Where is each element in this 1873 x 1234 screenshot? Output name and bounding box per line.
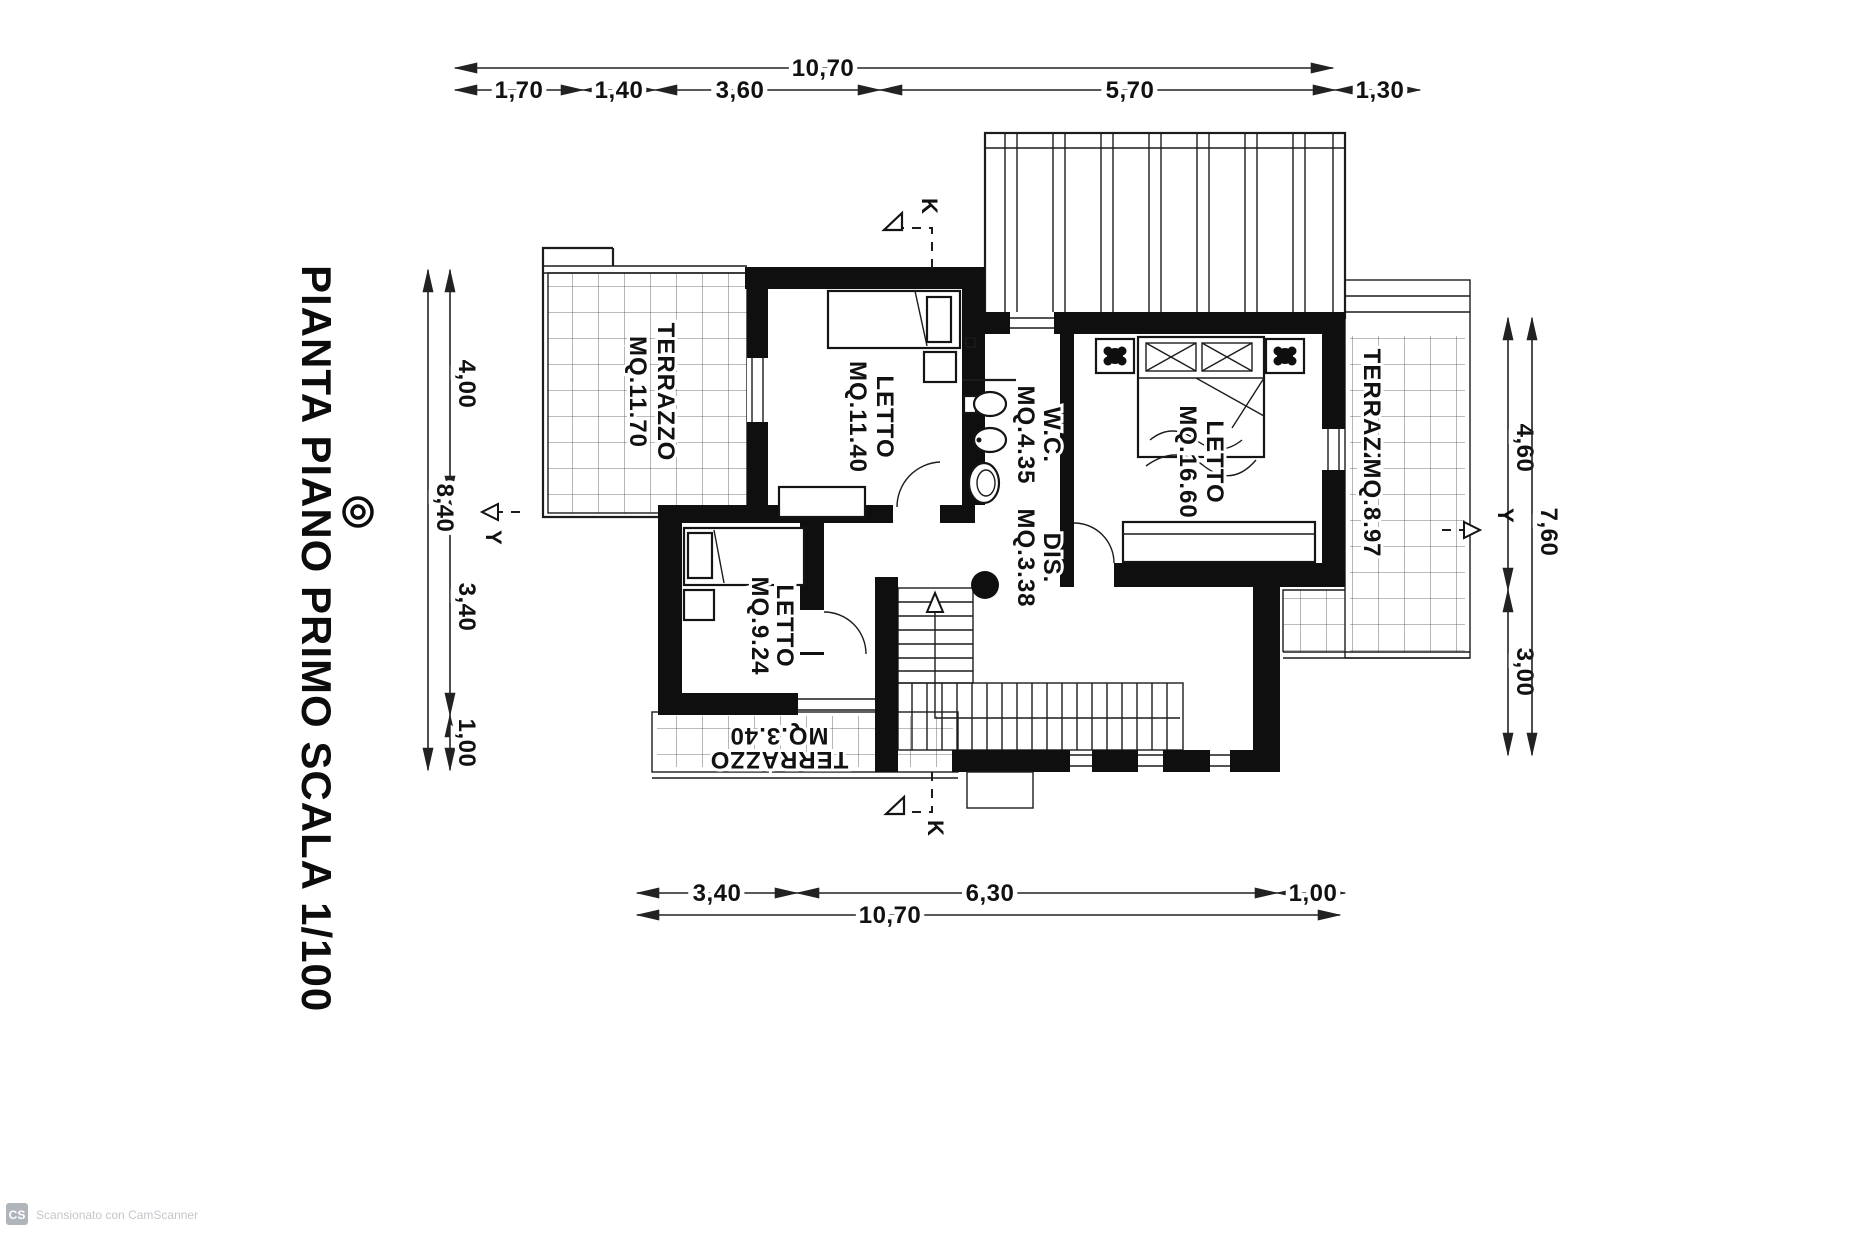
room-area-terrazzo-s: MQ.3.40 [729,722,828,749]
room-label-terrazzo-nw: TERRAZZO [652,323,679,462]
room-area-letto-e: MQ.16.60 [1174,405,1201,518]
section-letter-right: Y [1493,508,1518,523]
wardrobe [779,487,865,517]
nightstand [684,590,714,620]
camscanner-badge-text: CS [9,1208,26,1222]
dim-left-3: 1,00 [453,719,480,768]
room-area-letto-nw: MQ.11.40 [844,361,871,473]
door-arc-letto-sw [824,612,866,654]
room-label-letto-sw: LETTO [771,584,798,667]
dim-top-5: 1,30 [1356,77,1405,104]
dimensions-left: 4,00 3,40 1,00 8,40 [428,270,480,770]
dim-right-total: 7,60 [1535,508,1562,557]
dim-bottom-1: 3,40 [693,880,742,907]
section-marker-top: K [884,198,942,268]
dim-left-total: 8,40 [431,484,458,533]
section-letter-top: K [917,198,942,214]
room-area-terrazzo-e: MQ.8.97 [1358,458,1385,557]
dim-top-3: 3,60 [716,77,765,104]
dimensions-bottom: 3,40 6,30 1,00 10,70 [637,880,1345,929]
door-arc-letto-e [1074,523,1114,563]
section-triangle-top [884,213,902,230]
page-title: PIANTA PIANO PRIMO SCALA 1/100 [293,265,340,1012]
dimensions-right: 4,60 3,00 7,60 [1508,318,1562,755]
room-label-letto-nw: LETTO [871,375,898,458]
section-marker-bottom: K [886,772,948,836]
dim-top-4: 5,70 [1106,77,1155,104]
floor-plan-drawing: TERRAZZO MQ.11.70 LETTO MQ.11.40 W.C. MQ… [0,0,1873,1234]
dim-bottom-3: 1,00 [1289,880,1338,907]
section-letter-bottom: K [923,820,948,836]
room-label-terrazzo-s: TERRAZZO [710,746,849,773]
dim-top-total: 10,70 [792,55,855,82]
nightstand [924,352,956,382]
dim-right-2: 3,00 [1511,648,1538,697]
section-marker-left: Y [481,504,520,545]
room-area-letto-sw: MQ.9.24 [746,576,773,675]
pillow [927,297,951,342]
dimensions-top: 10,70 1,70 1,40 3,60 5,70 1,30 [455,55,1420,104]
dim-top-1: 1,70 [495,77,544,104]
dim-bottom-total: 10,70 [859,902,922,929]
dim-left-1: 4,00 [453,360,480,409]
room-label-dis: DIS. [1038,533,1065,584]
camscanner-text: Scansionato con CamScanner [36,1208,198,1222]
camscanner-watermark: CS Scansionato con CamScanner [6,1203,198,1225]
section-triangle-right [1464,522,1480,538]
room-label-letto-e: LETTO [1201,420,1228,503]
wardrobe [1123,522,1315,562]
column [971,571,999,599]
section-letter-left: Y [481,530,506,545]
room-area-wc: MQ.4.35 [1012,385,1039,484]
section-triangle-left [482,504,498,520]
room-area-terrazzo-nw: MQ.11.70 [624,336,651,448]
scanned-floor-plan-page: TERRAZZO MQ.11.70 LETTO MQ.11.40 W.C. MQ… [0,0,1873,1234]
registration-mark [344,498,372,526]
section-triangle-bottom [886,797,904,814]
room-area-dis: MQ.3.38 [1012,508,1039,607]
dim-top-2: 1,40 [595,77,644,104]
toilet [974,392,1006,416]
roof-beams [985,133,1345,318]
room-label-wc: W.C. [1038,407,1065,463]
dim-right-1: 4,60 [1511,424,1538,473]
pillow [688,533,712,578]
dim-left-2: 3,40 [453,583,480,632]
dim-bottom-2: 6,30 [966,880,1015,907]
door-arc-letto-nw [897,462,940,507]
entry-step [967,772,1033,808]
title-block: PIANTA PIANO PRIMO SCALA 1/100 [293,265,372,1012]
